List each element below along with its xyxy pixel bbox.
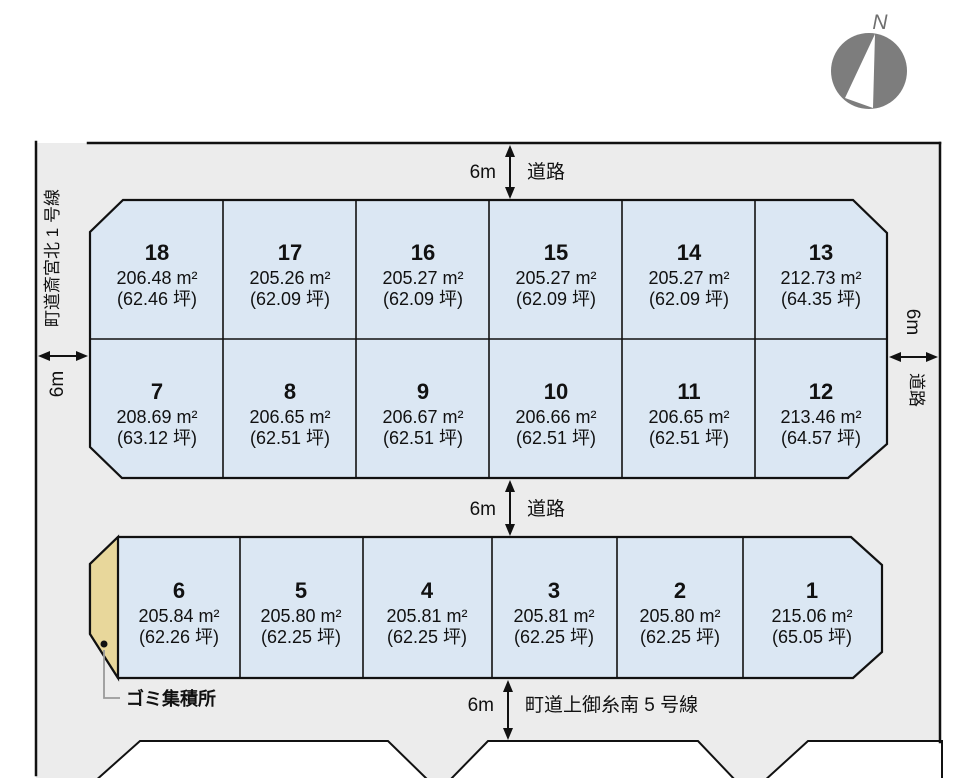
lot-area-tsubo: (62.51 坪) (516, 428, 596, 448)
left-road-name: 町道斎宮北 1 号線 (43, 189, 62, 327)
lot-area-tsubo: (62.09 坪) (383, 289, 463, 309)
bottom-road-name: 町道上御糸南 5 号線 (525, 694, 698, 716)
lot-area-m2: 208.69 m² (116, 407, 197, 427)
top-road-name: 道路 (527, 161, 565, 183)
site-plan-drawing: ゴミ集積所 18 206.48 m² (62.46 坪) 17 205.26 m… (0, 0, 961, 778)
lot-area-tsubo: (64.57 坪) (781, 428, 861, 448)
lot-area-tsubo: (65.05 坪) (772, 627, 852, 647)
lot-number: 13 (809, 240, 833, 265)
lot-area-tsubo: (62.25 坪) (261, 627, 341, 647)
lot-number: 14 (677, 240, 702, 265)
lot-number: 10 (544, 379, 568, 404)
lot-area-m2: 206.65 m² (648, 407, 729, 427)
left-road-width: 6m (47, 371, 68, 397)
lot-number: 16 (411, 240, 435, 265)
lot-number: 6 (173, 578, 185, 603)
lot-area-m2: 205.80 m² (639, 606, 720, 626)
lot-number: 2 (674, 578, 686, 603)
lot-area-m2: 205.81 m² (513, 606, 594, 626)
garbage-station-dot (101, 641, 108, 648)
lot-area-tsubo: (62.51 坪) (649, 428, 729, 448)
lot-area-tsubo: (63.12 坪) (117, 428, 197, 448)
lot-area-m2: 215.06 m² (771, 606, 852, 626)
lot-number: 9 (417, 379, 429, 404)
lot-area-tsubo: (62.51 坪) (250, 428, 330, 448)
lot-area-tsubo: (62.09 坪) (516, 289, 596, 309)
lot-area-m2: 205.84 m² (138, 606, 219, 626)
lot-number: 1 (806, 578, 818, 603)
lot-number: 17 (278, 240, 302, 265)
lot-number: 3 (548, 578, 560, 603)
lot-number: 12 (809, 379, 833, 404)
lot-area-tsubo: (62.25 坪) (514, 627, 594, 647)
lot-number: 8 (284, 379, 296, 404)
lot-number: 4 (421, 578, 434, 603)
neighbor-block-center (448, 741, 737, 778)
lot-area-m2: 206.65 m² (249, 407, 330, 427)
lot-area-m2: 205.27 m² (648, 268, 729, 288)
compass: N (831, 11, 907, 109)
lot-number: 15 (544, 240, 568, 265)
lot-area-m2: 205.27 m² (382, 268, 463, 288)
lot-area-m2: 213.46 m² (780, 407, 861, 427)
lot-number: 11 (677, 379, 700, 404)
lot-area-tsubo: (62.09 坪) (250, 289, 330, 309)
lot-number: 18 (145, 240, 169, 265)
lot-number: 7 (151, 379, 163, 404)
neighbor-block-left (94, 741, 430, 778)
site-plan-page: ゴミ集積所 18 206.48 m² (62.46 坪) 17 205.26 m… (0, 0, 961, 778)
lot-area-m2: 206.48 m² (116, 268, 197, 288)
lot-area-m2: 205.81 m² (386, 606, 467, 626)
lot-area-m2: 206.66 m² (515, 407, 596, 427)
lot-area-tsubo: (62.09 坪) (649, 289, 729, 309)
lot-area-tsubo: (62.26 坪) (139, 627, 219, 647)
lot-area-tsubo: (62.51 坪) (383, 428, 463, 448)
lot-area-tsubo: (62.25 坪) (387, 627, 467, 647)
lot-area-m2: 205.27 m² (515, 268, 596, 288)
middle-road-name: 道路 (527, 498, 565, 520)
right-road-name: 道路 (907, 373, 926, 407)
north-label: N (872, 11, 888, 34)
bottom-road-width: 6m (468, 695, 494, 716)
lot-area-m2: 205.26 m² (249, 268, 330, 288)
lot-area-m2: 206.67 m² (382, 407, 463, 427)
lot-number: 5 (295, 578, 307, 603)
garbage-station-label: ゴミ集積所 (126, 688, 216, 709)
lot-area-m2: 212.73 m² (780, 268, 861, 288)
top-road-width: 6m (470, 162, 496, 183)
middle-road-width: 6m (470, 499, 496, 520)
right-road-width: 6m (902, 309, 923, 335)
lot-area-tsubo: (62.46 坪) (117, 289, 197, 309)
lot-area-m2: 205.80 m² (260, 606, 341, 626)
lot-area-tsubo: (62.25 坪) (640, 627, 720, 647)
lot-area-tsubo: (64.35 坪) (781, 289, 861, 309)
